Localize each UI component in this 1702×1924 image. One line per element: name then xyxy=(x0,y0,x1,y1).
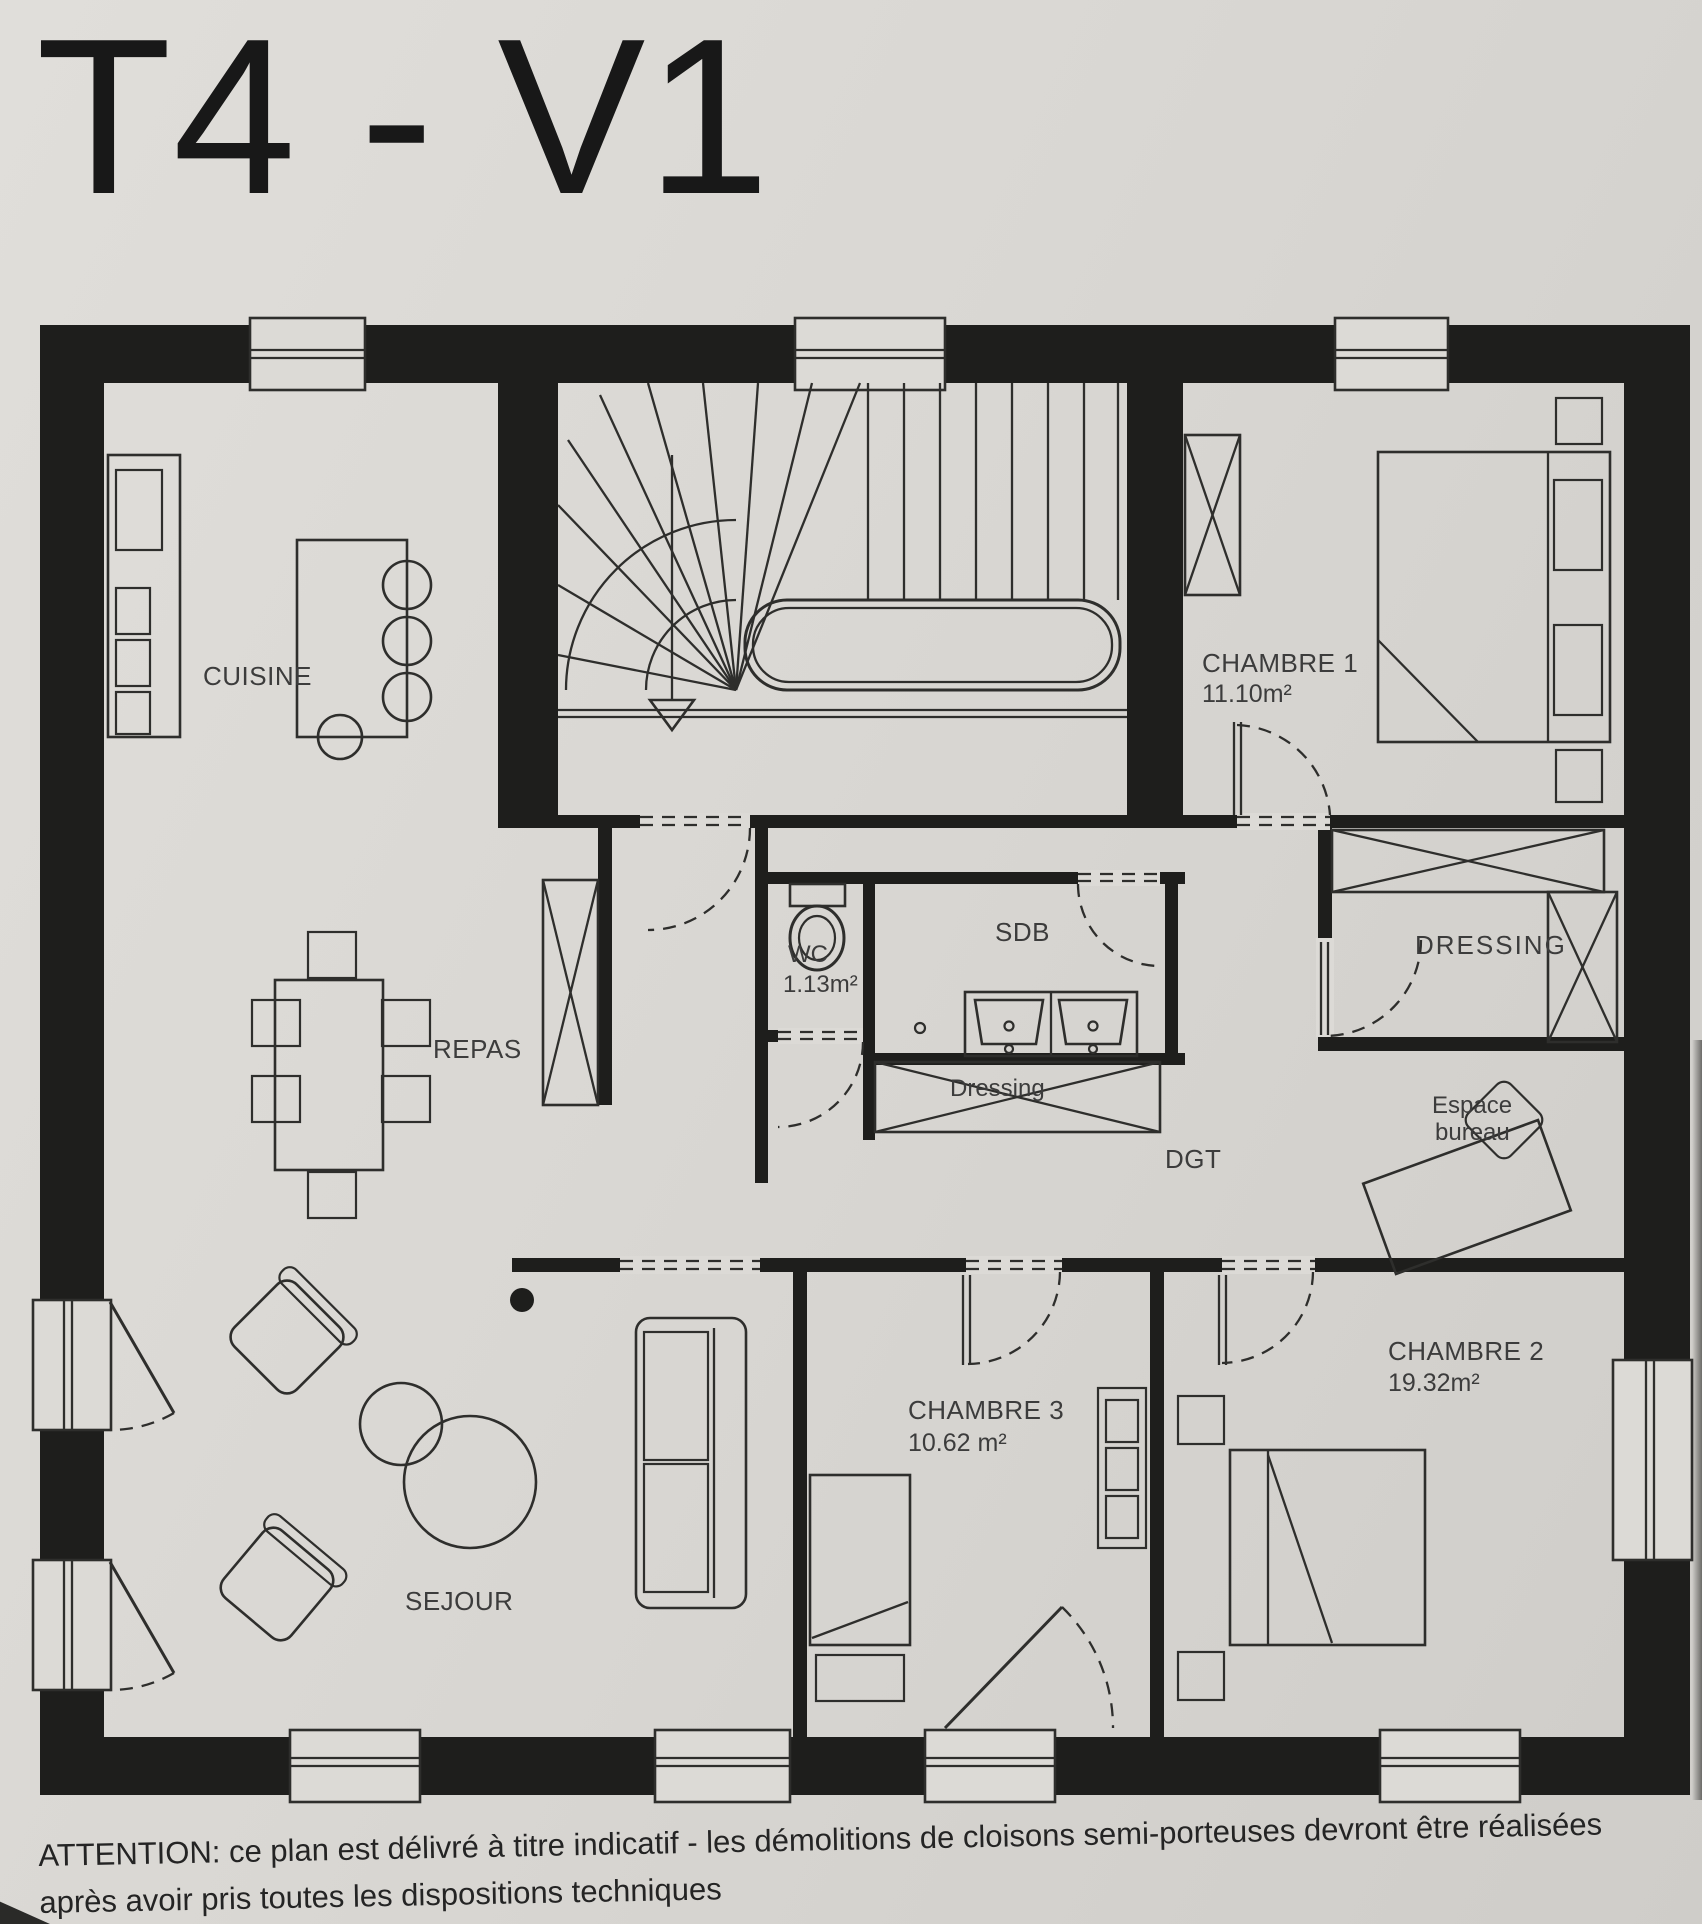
coffee-table xyxy=(360,1383,442,1465)
french-window xyxy=(33,1560,174,1690)
single-bed xyxy=(810,1475,910,1701)
door-swing xyxy=(1234,722,1330,830)
door-swing xyxy=(1219,1256,1315,1365)
room-area-chambre1: 11.10m² xyxy=(1202,680,1292,708)
wardrobe xyxy=(1332,830,1604,892)
cased-opening xyxy=(620,1256,760,1274)
photographed-floor-plan-page: T4 - V1 xyxy=(0,0,1702,1924)
window xyxy=(1380,1730,1520,1802)
window xyxy=(795,318,945,390)
room-label-dressing: DRESSING xyxy=(1415,930,1567,960)
sdb-fixtures xyxy=(915,992,1137,1056)
nightstand xyxy=(1556,750,1602,802)
room-label-sdb: SDB xyxy=(995,917,1050,947)
kitchen-counter xyxy=(108,455,180,737)
structural-post-dot xyxy=(510,1288,534,1312)
chair xyxy=(382,1000,430,1046)
chambre2-furniture xyxy=(1178,1396,1425,1700)
door-swing xyxy=(963,1256,1062,1365)
walls xyxy=(40,325,1690,1795)
chair xyxy=(308,932,356,978)
wardrobe xyxy=(1548,892,1617,1042)
label-dressing-closet: Dressing xyxy=(950,1075,1045,1102)
dining-set xyxy=(252,880,598,1218)
room-area-wc: 1.13m² xyxy=(783,971,858,998)
room-label-sejour: SEJOUR xyxy=(405,1586,513,1616)
floor-plan: CUISINE REPAS SEJOUR WC 1.13m² SDB Dress… xyxy=(0,0,1702,1924)
door-swing xyxy=(1316,938,1421,1037)
chair xyxy=(308,1172,356,1218)
double-bed xyxy=(1230,1450,1425,1645)
nightstand xyxy=(1178,1396,1224,1444)
chambre1-furniture xyxy=(1185,398,1610,802)
room-label-wc: WC xyxy=(788,941,828,968)
room-area-chambre2: 19.32m² xyxy=(1388,1369,1480,1397)
french-window xyxy=(33,1300,174,1430)
entry-door-swing xyxy=(640,813,750,930)
kitchen-island xyxy=(297,540,407,737)
coffee-table xyxy=(404,1416,536,1548)
door-swing xyxy=(1078,870,1160,966)
double-bed xyxy=(1378,452,1610,742)
storage-wardrobe xyxy=(543,880,598,1105)
stair-direction-arrow xyxy=(650,455,694,730)
chair xyxy=(382,1076,430,1122)
label-espace-bureau-1: Espace xyxy=(1432,1092,1512,1119)
sofa xyxy=(636,1318,746,1608)
door-swing xyxy=(778,1028,863,1127)
photo-edge-shadow xyxy=(1692,1040,1702,1800)
nightstand xyxy=(1556,398,1602,444)
room-area-chambre3: 10.62 m² xyxy=(908,1429,1007,1457)
window xyxy=(1613,1360,1692,1560)
window xyxy=(1335,318,1448,390)
armchair xyxy=(210,1510,350,1649)
room-label-cuisine: CUISINE xyxy=(203,661,312,691)
wardrobe xyxy=(1185,435,1240,595)
staircase xyxy=(558,383,1127,730)
windows xyxy=(33,318,1692,1802)
kitchen xyxy=(108,455,431,759)
room-label-dgt: DGT xyxy=(1165,1144,1221,1174)
nightstand xyxy=(1178,1652,1224,1700)
room-label-chambre2: CHAMBRE 2 xyxy=(1388,1336,1544,1366)
window xyxy=(290,1730,420,1802)
room-label-chambre1: CHAMBRE 1 xyxy=(1202,648,1358,678)
window xyxy=(250,318,365,390)
room-label-repas: REPAS xyxy=(433,1034,522,1064)
label-espace-bureau-2: bureau xyxy=(1435,1119,1510,1146)
window xyxy=(655,1730,790,1802)
armchair xyxy=(221,1263,361,1403)
room-label-chambre3: CHAMBRE 3 xyxy=(908,1395,1064,1425)
radiator xyxy=(1098,1388,1146,1548)
